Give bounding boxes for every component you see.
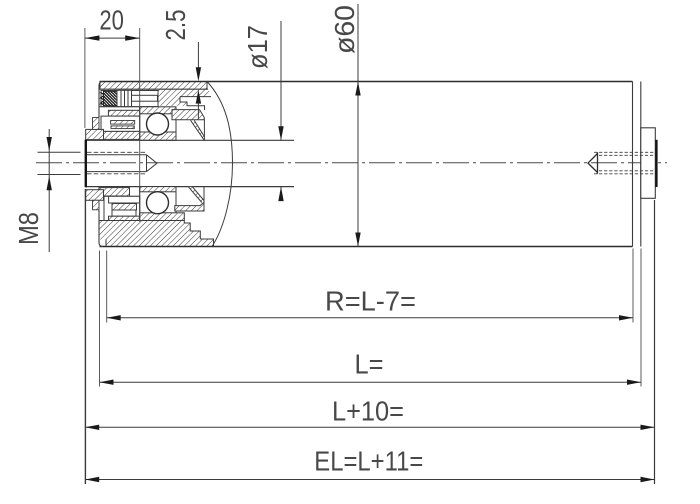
svg-text:ø60: ø60 [329, 5, 360, 54]
svg-text:M8: M8 [13, 212, 44, 245]
svg-text:2.5: 2.5 [160, 9, 191, 40]
svg-text:EL=L+11=: EL=L+11= [314, 446, 423, 477]
svg-text:L+10=: L+10= [332, 396, 404, 427]
svg-text:ø17: ø17 [242, 25, 273, 69]
svg-text:R=L-7=: R=L-7= [325, 286, 416, 317]
svg-text:20: 20 [99, 5, 124, 36]
svg-text:L=: L= [355, 349, 384, 380]
